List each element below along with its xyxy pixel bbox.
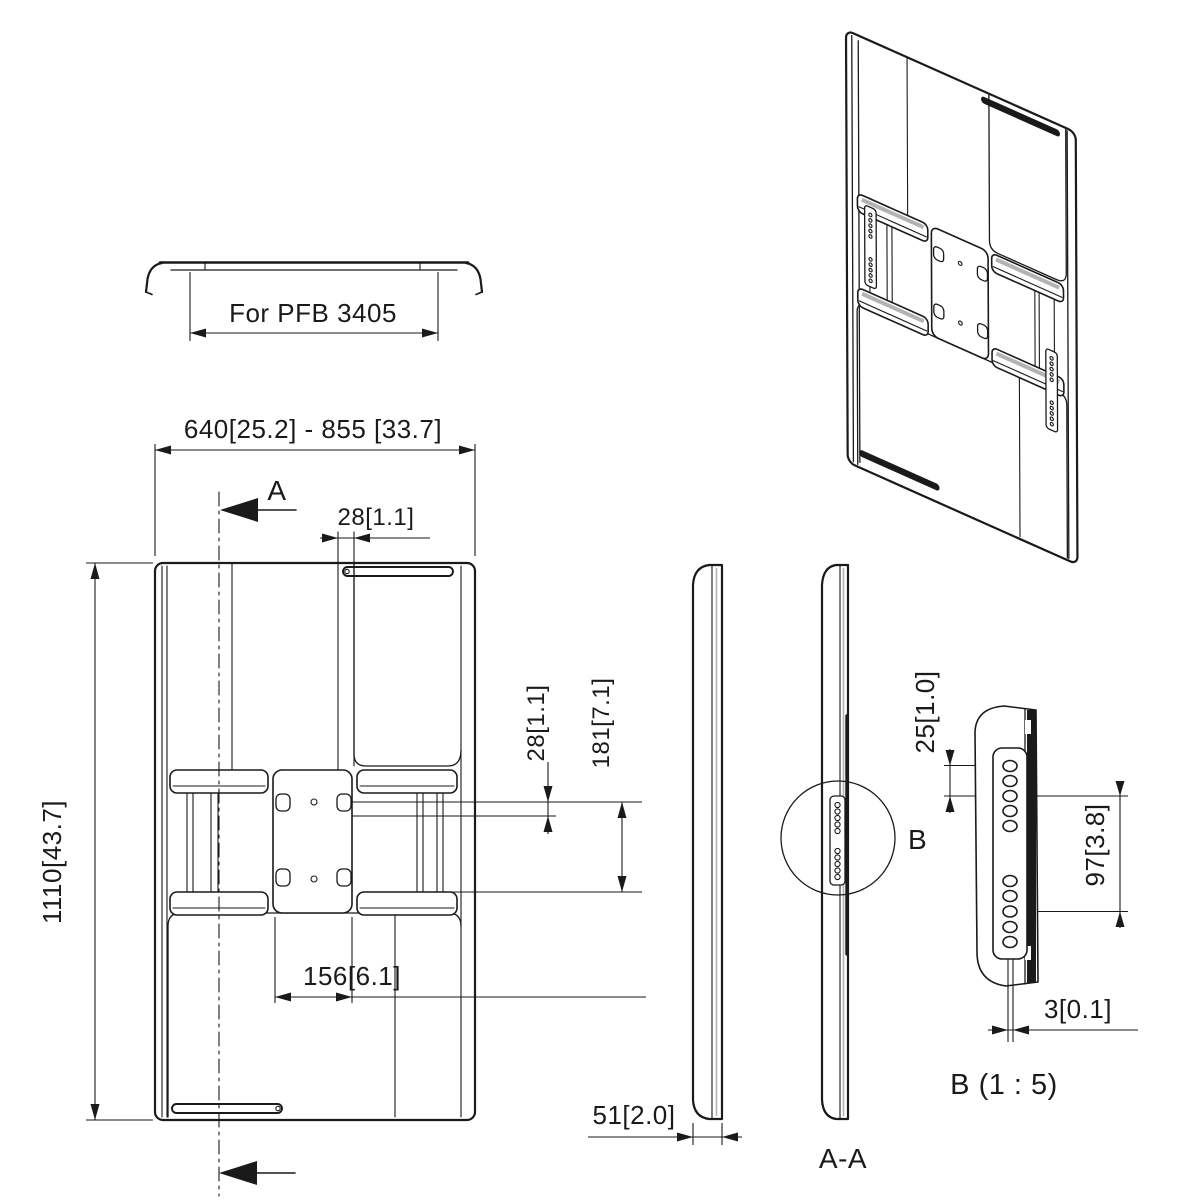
detail-plate-thickness-label: 3[0.1] [1044, 994, 1112, 1024]
front-top-slot [343, 567, 453, 576]
detail-perforated-plate [993, 748, 1027, 959]
dim-front-width: 640[25.2] - 855 [33.7] [155, 414, 475, 556]
dim-detail-plate-thickness: 3[0.1] [988, 994, 1138, 1035]
top-profile-view: For PFB 3405 [146, 263, 482, 342]
front-bottom-slot [172, 1104, 282, 1113]
profile-width-label: For PFB 3405 [229, 298, 397, 328]
drawing-sheet: For PFB 3405 [0, 0, 1200, 1200]
iso-adapter-plate [931, 226, 988, 361]
detail-view-b: 25[1.0] 97[3.8] 3[0.1] B (1 : 5) [910, 670, 1138, 1101]
iso-top-slot [981, 96, 1060, 138]
detail-group-span-label: 97[3.8] [1080, 803, 1110, 886]
section-arrow-top: A [220, 475, 296, 522]
detail-marker-label: B [908, 824, 927, 855]
detail-hole-pitch-label: 25[1.0] [910, 670, 940, 753]
hole-spacing-h-label: 156[6.1] [303, 961, 401, 991]
section-arrow-bottom [219, 1161, 295, 1185]
hole-row-span-label: 181[7.1] [588, 678, 615, 769]
side-view: 51[2.0] [588, 565, 742, 1145]
side-depth-label: 51[2.0] [592, 1100, 675, 1130]
section-aa-label: A-A [819, 1143, 867, 1174]
front-view: A [155, 475, 475, 1196]
dim-top-hook-gap: 28[1.1] [320, 504, 430, 543]
section-arrow-icon [219, 1161, 257, 1185]
aa-perforated-strip [830, 796, 845, 885]
dim-front-height: 1110[43.7] [37, 563, 153, 1120]
detail-back-rail [1027, 710, 1036, 983]
front-width-label: 640[25.2] - 855 [33.7] [184, 414, 442, 444]
section-label-a: A [267, 475, 286, 506]
dim-detail-hole-pitch: 25[1.0] [910, 670, 955, 813]
iso-perforated-strip-right [1046, 348, 1058, 433]
section-arrow-icon [220, 498, 258, 522]
front-height-label: 1110[43.7] [37, 800, 67, 924]
dim-detail-group-span: 97[3.8] [1080, 781, 1125, 928]
technical-drawing: For PFB 3405 [0, 0, 1200, 1200]
hole-row-offset-label: 28[1.1] [523, 685, 550, 762]
top-hook-gap-label: 28[1.1] [338, 504, 415, 531]
detail-view-title: B (1 : 5) [950, 1069, 1058, 1101]
iso-perforated-strip-left [865, 205, 877, 290]
section-view-aa: B A-A [781, 565, 927, 1174]
front-adapter-plate [273, 770, 352, 913]
isometric-view [846, 30, 1077, 565]
dim-profile-width: For PFB 3405 [190, 272, 438, 341]
dim-side-depth: 51[2.0] [588, 1100, 742, 1145]
